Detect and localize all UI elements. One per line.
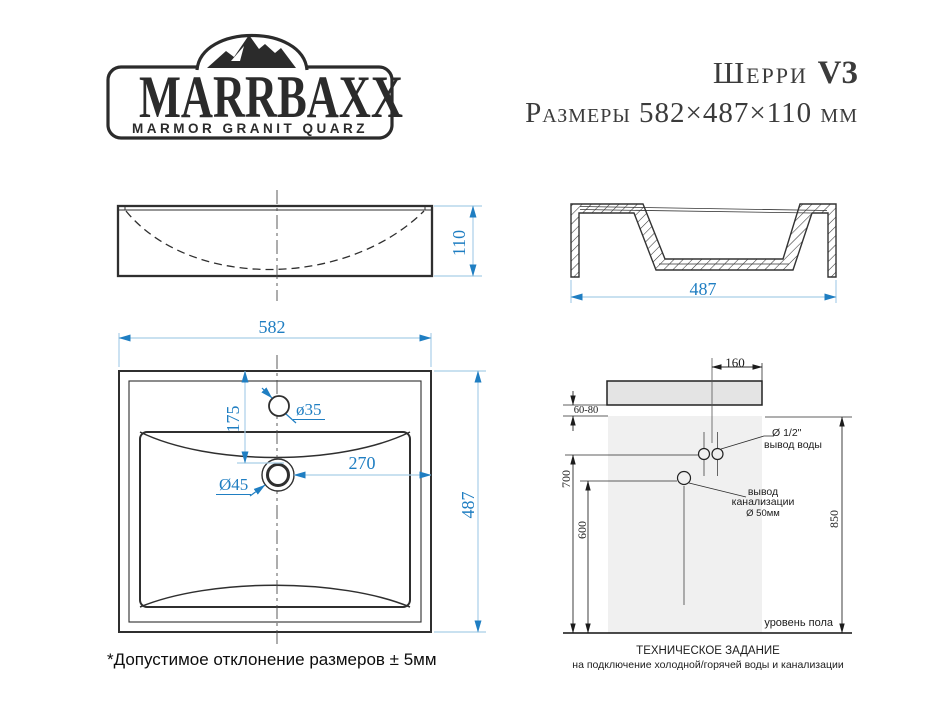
basin-silhouette [607, 381, 762, 405]
water-outlet-right [712, 449, 723, 460]
dim-faucet-hole: ø35 [293, 401, 325, 420]
dim-top-width: 582 [250, 317, 294, 337]
tech-task-title: ТЕХНИЧЕСКОЕ ЗАДАНИЕ [538, 645, 878, 657]
dim-top-depth: 487 [458, 483, 478, 527]
sewage-label-2: канализации [713, 497, 813, 507]
brand-name: MARRBAXX [139, 67, 361, 127]
floor-level-label: уровень пола [733, 618, 833, 630]
wall-zone [608, 416, 762, 633]
dim-water-height: 700 [559, 459, 573, 499]
dim-front-height: 110 [449, 221, 469, 265]
dim-drain-offset: 270 [340, 453, 384, 473]
page-title: Шерри V3 [713, 56, 858, 90]
tolerance-footnote: *Допустимое отклонение размеров ± 5мм [107, 650, 437, 670]
dim-drain-hole: Ø45 [216, 476, 251, 495]
overall-dimensions: Размеры 582×487×110 мм [525, 97, 858, 129]
sewage-label-block: вывод канализации Ø 50мм [713, 487, 813, 519]
sewage-size-label: Ø 50мм [713, 509, 813, 519]
section-profile [571, 204, 836, 277]
water-outlet-left [699, 449, 710, 460]
dim-side-depth: 487 [681, 279, 725, 299]
water-outlet-label: вывод воды [764, 440, 822, 452]
water-outlet-size-label: Ø 1/2" [772, 428, 801, 440]
top-view-drawing [100, 315, 500, 660]
model-version: V3 [818, 55, 858, 91]
faucet-hole [269, 396, 289, 416]
brand-tagline: MARMOR GRANIT QUARZ [100, 121, 400, 136]
dim-sewage-height: 600 [575, 510, 589, 550]
front-view-drawing [100, 178, 500, 313]
dim-tap-offset: 160 [715, 356, 755, 370]
tech-task-subtitle: на подключение холодной/горячей воды и к… [508, 659, 908, 671]
dim-rim-height: 850 [827, 499, 841, 539]
dim-faucet-offset: 175 [223, 397, 243, 441]
model-name: Шерри [713, 55, 808, 90]
dim-wall-gap: 60-80 [566, 404, 606, 418]
spec-sheet: MARRBAXX MARMOR GRANIT QUARZ Шерри V3 Ра… [0, 0, 952, 716]
sewage-outlet [678, 472, 691, 485]
